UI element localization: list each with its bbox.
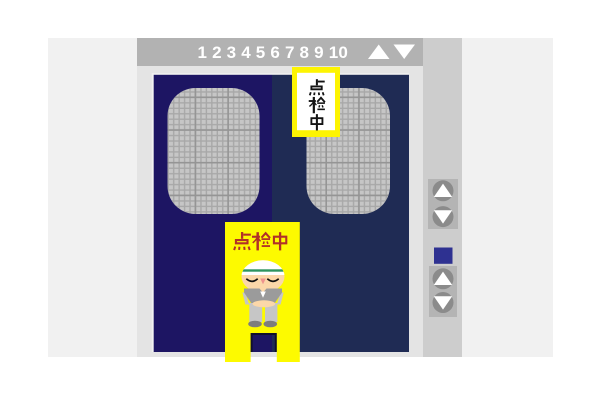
svg-text:1 2 3 4 5 6 7 8 9 10: 1 2 3 4 5 6 7 8 9 10 bbox=[198, 43, 349, 62]
